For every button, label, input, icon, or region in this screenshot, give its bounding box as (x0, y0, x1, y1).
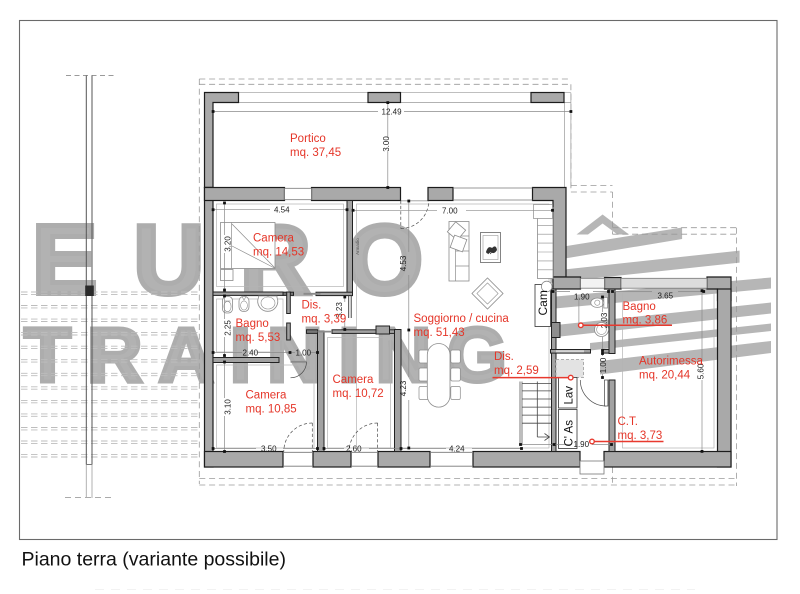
svg-text:Camera: Camera (333, 374, 375, 386)
svg-text:1.90: 1.90 (574, 293, 590, 302)
svg-text:4.24: 4.24 (449, 444, 465, 453)
svg-text:mq. 37,45: mq. 37,45 (290, 147, 341, 159)
svg-text:2.40: 2.40 (243, 348, 259, 357)
svg-text:3.00: 3.00 (382, 136, 391, 152)
svg-text:mq. 5,53: mq. 5,53 (236, 332, 281, 344)
svg-text:Dis.: Dis. (494, 351, 514, 363)
svg-text:4.54: 4.54 (274, 206, 290, 215)
svg-text:4.53: 4.53 (399, 255, 408, 271)
svg-text:mq. 20,44: mq. 20,44 (639, 370, 691, 382)
svg-text:Piano terra (variante possibil: Piano terra (variante possibile) (22, 549, 286, 571)
svg-text:2.60: 2.60 (346, 444, 362, 453)
svg-text:C.T.: C.T. (618, 416, 638, 428)
svg-text:Camera: Camera (253, 233, 295, 245)
svg-text:mq. 2,59: mq. 2,59 (494, 365, 539, 377)
svg-text:1.90: 1.90 (574, 440, 590, 449)
svg-text:2.25: 2.25 (224, 320, 233, 336)
svg-text:1.00: 1.00 (296, 348, 312, 357)
svg-text:Dis.: Dis. (302, 300, 322, 312)
svg-text:Soggiorno / cucina: Soggiorno / cucina (414, 313, 510, 325)
svg-text:1.00: 1.00 (599, 357, 608, 373)
svg-text:3.50: 3.50 (261, 444, 277, 453)
svg-text:12.49: 12.49 (382, 107, 403, 116)
svg-text:C' As: C' As (564, 420, 576, 447)
svg-text:mq. 3,73: mq. 3,73 (618, 430, 663, 442)
svg-text:mq. 51,43: mq. 51,43 (414, 327, 465, 339)
svg-text:Portico: Portico (290, 133, 326, 145)
svg-text:Armadio: Armadio (355, 238, 360, 255)
svg-text:mq. 10,85: mq. 10,85 (246, 404, 297, 416)
svg-text:3.65: 3.65 (658, 292, 674, 301)
svg-text:Camera: Camera (246, 390, 288, 402)
svg-text:mq. 14,53: mq. 14,53 (253, 247, 304, 259)
svg-text:mq. 10,72: mq. 10,72 (333, 388, 384, 400)
svg-text:7.00: 7.00 (442, 206, 458, 215)
svg-text:mq. 3,39: mq. 3,39 (302, 314, 347, 326)
svg-text:Lav: Lav (564, 386, 576, 405)
svg-text:4.23: 4.23 (399, 380, 408, 396)
svg-text:3.20: 3.20 (224, 236, 233, 252)
svg-text:3.10: 3.10 (224, 399, 233, 415)
svg-text:Bagno: Bagno (236, 318, 269, 330)
svg-text:Bagno: Bagno (623, 301, 656, 313)
svg-text:Autorimessa: Autorimessa (639, 356, 704, 368)
svg-text:Cam: Cam (536, 290, 550, 315)
